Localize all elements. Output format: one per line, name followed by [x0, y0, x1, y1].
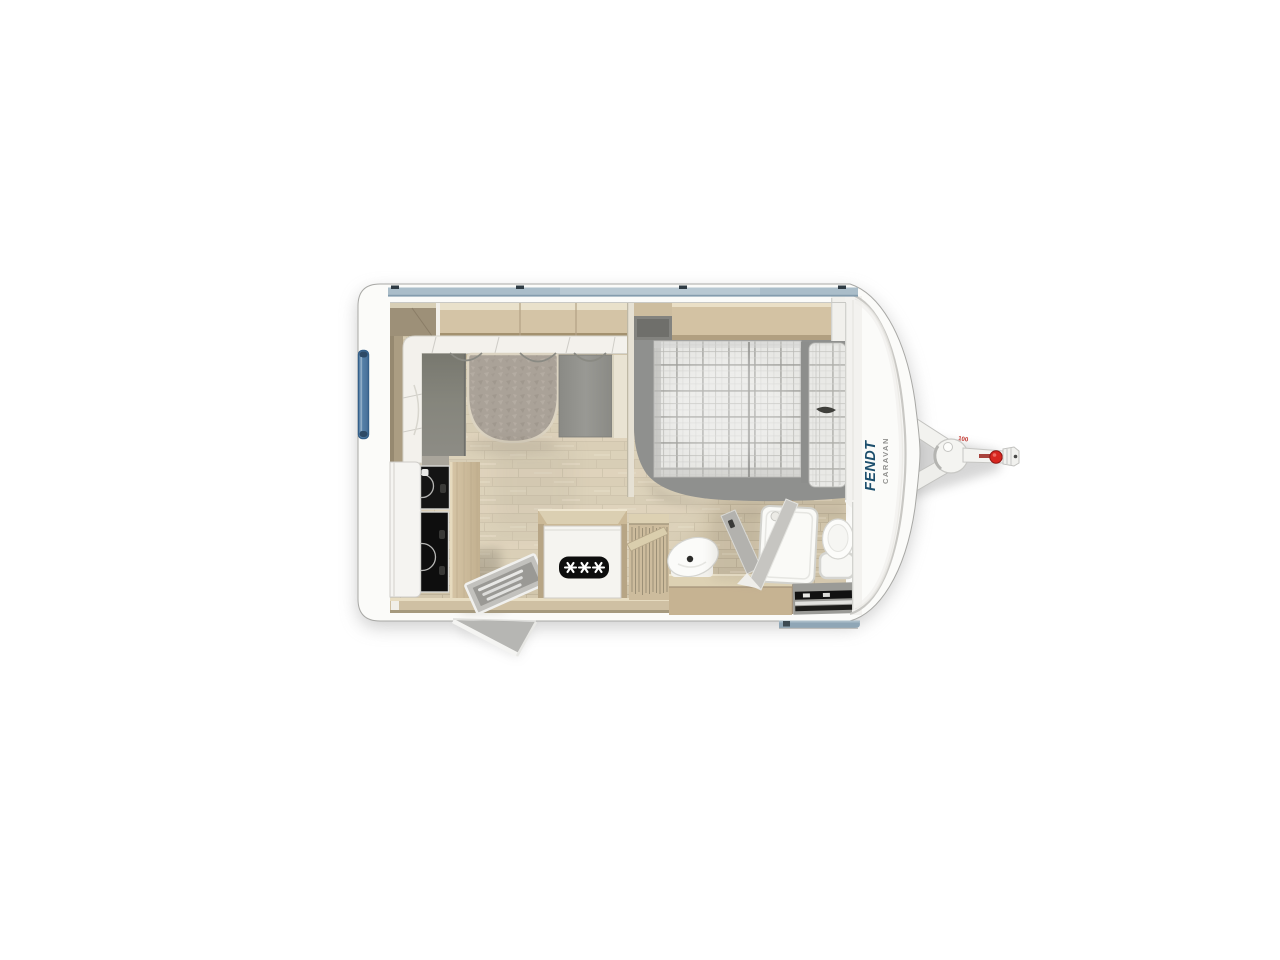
svg-text:FENDT: FENDT: [863, 440, 879, 491]
svg-text:CARAVAN: CARAVAN: [881, 437, 890, 484]
